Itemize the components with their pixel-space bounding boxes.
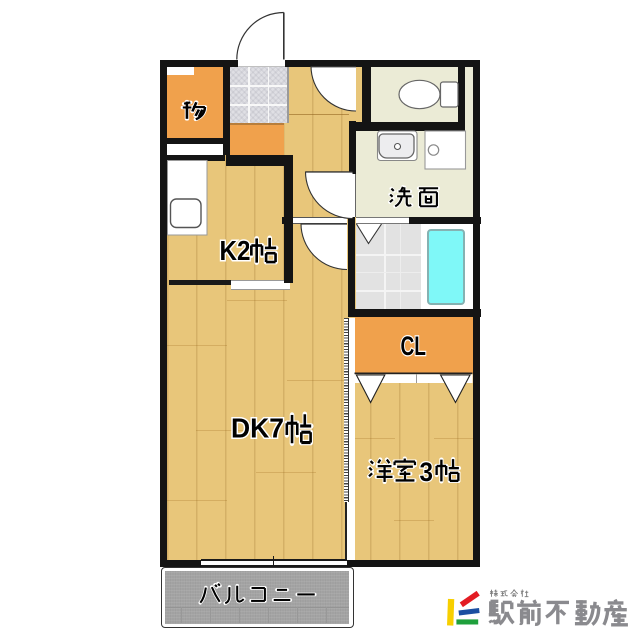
svg-text:CL: CL [401,331,427,361]
svg-text:K2: K2 [220,235,251,266]
svg-text:3: 3 [420,457,434,487]
svg-text:DK7: DK7 [231,413,284,444]
